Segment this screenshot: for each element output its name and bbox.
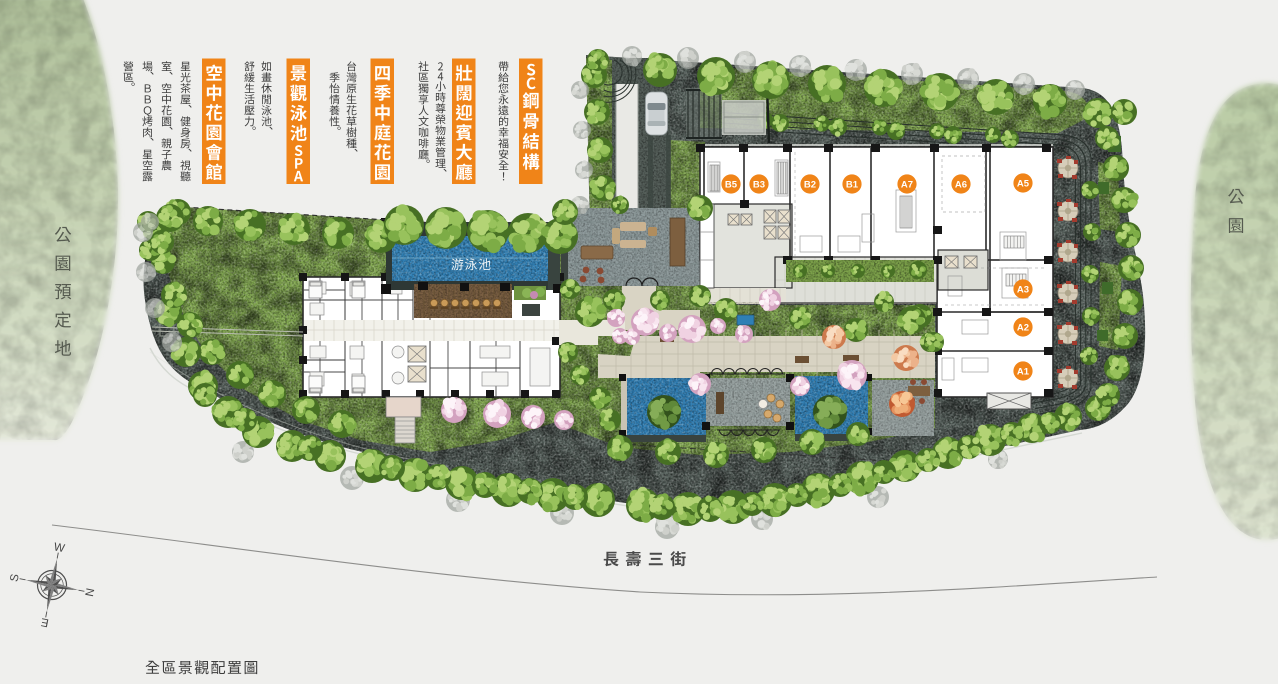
svg-text:B5: B5 bbox=[725, 180, 738, 191]
svg-text:A7: A7 bbox=[901, 180, 913, 191]
svg-text:A3: A3 bbox=[1017, 285, 1029, 296]
svg-text:B2: B2 bbox=[804, 180, 816, 191]
svg-text:A1: A1 bbox=[1017, 367, 1030, 378]
svg-text:B3: B3 bbox=[753, 180, 765, 191]
svg-text:B1: B1 bbox=[846, 180, 859, 191]
svg-text:A5: A5 bbox=[1017, 179, 1030, 190]
svg-text:A6: A6 bbox=[955, 180, 967, 191]
svg-text:A2: A2 bbox=[1017, 323, 1029, 334]
